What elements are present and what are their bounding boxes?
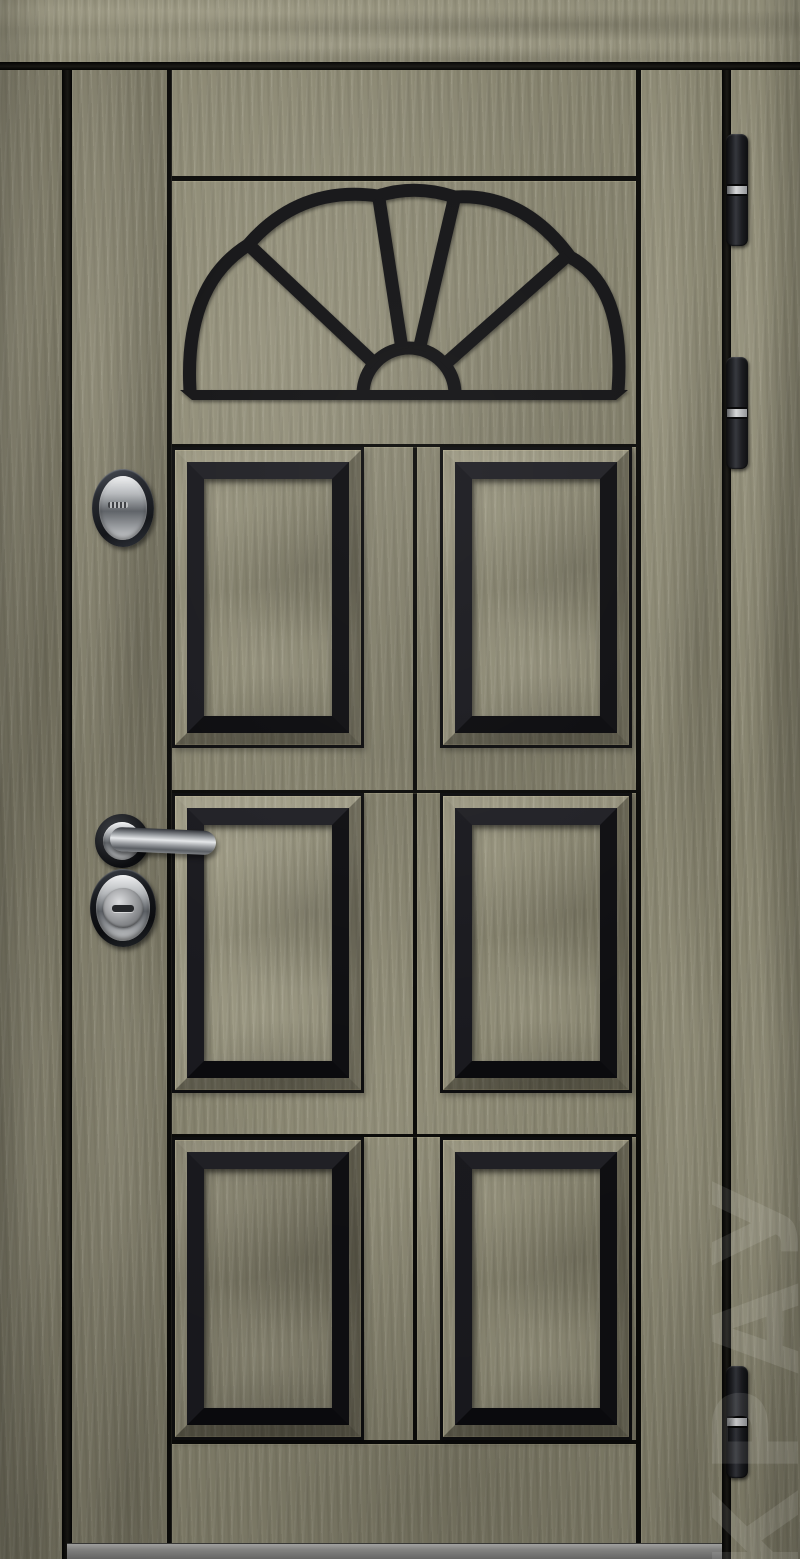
keyhole-slot bbox=[112, 905, 134, 912]
upper-lock-escutcheon bbox=[92, 469, 154, 547]
panel-inner-field bbox=[472, 479, 600, 716]
panel-inner-field bbox=[204, 1169, 332, 1408]
center-mullion-groove bbox=[413, 444, 417, 1444]
row3-bottom-groove bbox=[172, 1440, 636, 1444]
fanlight-sunburst-trim bbox=[172, 183, 636, 400]
hinge-top bbox=[726, 134, 748, 246]
hinge-band bbox=[727, 1418, 747, 1426]
left-stile-groove bbox=[167, 70, 171, 1543]
hinge-band bbox=[727, 186, 747, 194]
door-panel-bottom-left bbox=[172, 1137, 364, 1440]
door-panel-top-left bbox=[172, 447, 364, 748]
right-stile-groove bbox=[636, 70, 641, 1543]
hinge-band bbox=[727, 409, 747, 417]
frame-right-casing bbox=[731, 70, 800, 1559]
escutcheon-knurl-detail bbox=[108, 502, 128, 508]
frame-top-casing bbox=[0, 0, 800, 62]
hinge-middle bbox=[726, 357, 748, 469]
lever-handle bbox=[110, 827, 217, 856]
main-lock-cylinder bbox=[90, 869, 156, 947]
hinge-bottom bbox=[726, 1366, 748, 1478]
frame-left-casing bbox=[0, 70, 62, 1559]
panel-inner-field bbox=[472, 1169, 600, 1408]
panel-inner-field bbox=[472, 825, 600, 1061]
right-reveal-gap bbox=[722, 70, 731, 1559]
leaf-left-stile bbox=[72, 70, 167, 1543]
door-panel-top-right bbox=[440, 447, 632, 748]
door-panel-bottom-right bbox=[440, 1137, 632, 1440]
fanlight-top-groove bbox=[172, 176, 636, 181]
leaf-right-stile bbox=[641, 70, 722, 1543]
door-panel-middle-right bbox=[440, 793, 632, 1093]
left-reveal-gap bbox=[62, 70, 72, 1559]
escutcheon-chrome-core bbox=[99, 476, 147, 540]
panel-inner-field bbox=[204, 479, 332, 716]
top-reveal-gap bbox=[0, 62, 800, 70]
panel-inner-field bbox=[204, 825, 332, 1061]
cylinder-core bbox=[103, 888, 143, 928]
entry-door-product-photo: КРАУ bbox=[0, 0, 800, 1559]
threshold-sill bbox=[67, 1543, 722, 1559]
sunburst-icon bbox=[172, 183, 636, 400]
